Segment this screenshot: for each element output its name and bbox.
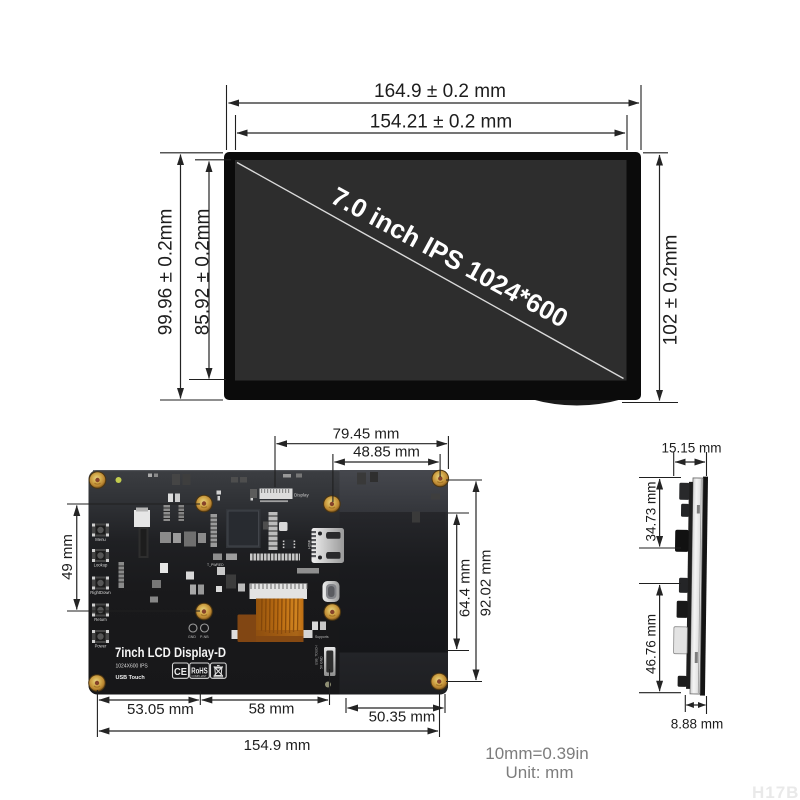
svg-text:USB Touch: USB Touch <box>116 675 146 681</box>
svg-text:USB_TOUCH: USB_TOUCH <box>315 645 319 665</box>
svg-text:H17B: H17B <box>752 783 799 800</box>
svg-text:154.21 ± 0.2 mm: 154.21 ± 0.2 mm <box>370 112 512 133</box>
svg-text:7inch LCD Display-D: 7inch LCD Display-D <box>115 645 226 660</box>
svg-text:RightDown: RightDown <box>90 590 111 595</box>
svg-text:Menu: Menu <box>95 537 106 542</box>
svg-text:RoHS: RoHS <box>191 666 208 676</box>
svg-text:Return: Return <box>94 617 107 622</box>
svg-text:53.05 mm: 53.05 mm <box>127 701 194 718</box>
svg-text:46.76 mm: 46.76 mm <box>644 614 659 674</box>
svg-text:15.15 mm: 15.15 mm <box>661 441 721 456</box>
svg-text:64.4 mm: 64.4 mm <box>457 559 474 617</box>
svg-text:Lookup: Lookup <box>94 563 108 568</box>
svg-text:P-NB: P-NB <box>200 635 209 639</box>
svg-text:85.92 ± 0.2mm: 85.92 ± 0.2mm <box>193 209 214 336</box>
svg-text:CE: CE <box>174 666 187 678</box>
svg-text:164.9 ± 0.2 mm: 164.9 ± 0.2 mm <box>374 81 506 102</box>
svg-text:5V GND: 5V GND <box>320 656 324 669</box>
svg-text:1024X600 IPS: 1024X600 IPS <box>116 664 149 670</box>
svg-text:HDMI: HDMI <box>308 540 312 549</box>
svg-text:79.45 mm: 79.45 mm <box>333 426 400 443</box>
svg-text:COMPLIANT: COMPLIANT <box>192 674 208 678</box>
svg-text:GND: GND <box>188 635 196 639</box>
svg-text:48.85 mm: 48.85 mm <box>353 444 420 461</box>
svg-text:Supports: Supports <box>315 635 329 639</box>
svg-text:T_PWRED: T_PWRED <box>207 563 224 567</box>
svg-text:58 mm: 58 mm <box>249 701 295 718</box>
svg-text:154.9 mm: 154.9 mm <box>244 737 311 754</box>
svg-text:92.02 mm: 92.02 mm <box>478 550 495 617</box>
svg-text:102 ± 0.2mm: 102 ± 0.2mm <box>661 235 682 346</box>
svg-text:Power: Power <box>95 644 107 649</box>
svg-text:Display: Display <box>294 493 310 498</box>
svg-text:99.96 ± 0.2mm: 99.96 ± 0.2mm <box>156 209 177 336</box>
svg-text:50.35 mm: 50.35 mm <box>369 709 436 726</box>
svg-text:49 mm: 49 mm <box>59 534 76 580</box>
svg-text:8.88 mm: 8.88 mm <box>671 717 724 732</box>
svg-text:Unit: mm: Unit: mm <box>506 763 574 782</box>
svg-text:34.73 mm: 34.73 mm <box>644 481 659 541</box>
svg-text:10mm=0.39in: 10mm=0.39in <box>485 744 588 763</box>
